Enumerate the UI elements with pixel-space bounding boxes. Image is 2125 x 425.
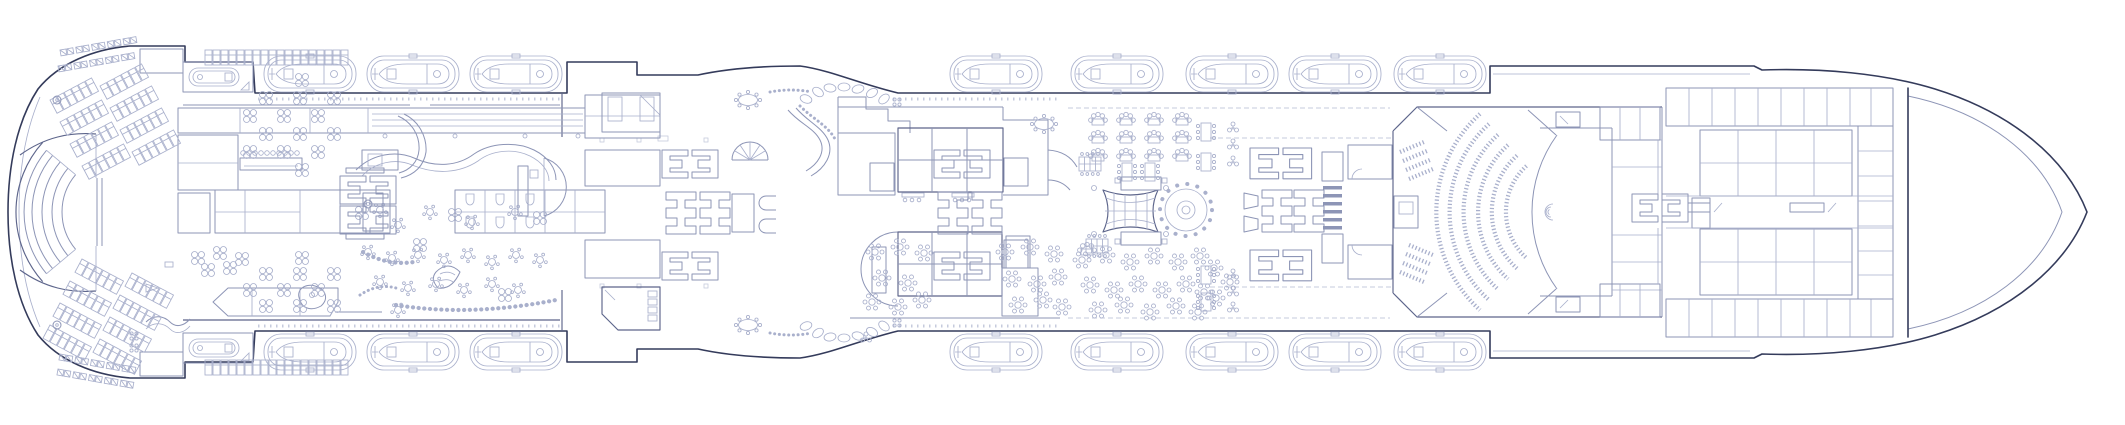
table-4top: [294, 268, 307, 281]
planter-rock: [877, 319, 891, 333]
long-table: [1196, 293, 1215, 311]
star-table: [1115, 297, 1133, 313]
bow-bulwark: [1908, 96, 2062, 329]
table-4top: [278, 110, 291, 123]
stage: [1532, 112, 1612, 312]
table-4top: [244, 284, 257, 297]
star-table: [899, 275, 917, 291]
plant: [1228, 302, 1239, 312]
elevator-pair: [1250, 250, 1312, 281]
wc-stall: [496, 217, 504, 228]
long-table: [1117, 163, 1136, 181]
theatre: [1393, 107, 1710, 317]
table-4top: [236, 253, 249, 266]
oval-table: [734, 315, 761, 334]
lounger-row: [253, 50, 300, 65]
star-table: [1169, 254, 1187, 270]
photo-gallery: [602, 287, 660, 330]
lounger-row: [53, 303, 102, 338]
plant: [1228, 122, 1239, 132]
banquet-cluster: [1089, 112, 1108, 125]
lounger-row: [253, 360, 300, 375]
banquet-cluster: [1173, 112, 1192, 125]
deck-plan-canvas: Cruise ship deck plan: [0, 0, 2125, 425]
round-table: [401, 281, 416, 296]
star-table: [1009, 297, 1027, 313]
wc-stall: [466, 194, 474, 205]
lounger-row: [132, 130, 181, 165]
star-table: [1129, 276, 1147, 292]
planter-rock: [823, 83, 836, 93]
stern-bottom-bar: [146, 262, 396, 333]
lifeboat: [470, 332, 562, 372]
lifeboat: [367, 54, 459, 94]
star-table: [1177, 276, 1195, 292]
table-4top: [296, 252, 309, 265]
tender: [183, 333, 253, 363]
elevator-h: [938, 192, 968, 234]
star-table: [996, 244, 1014, 260]
star-table: [1105, 282, 1123, 298]
banquet-cluster: [1173, 148, 1192, 161]
planter-rock: [865, 87, 879, 100]
elevator-pair: [662, 252, 718, 280]
elevator-pair: [1250, 148, 1312, 179]
elevator-h: [972, 192, 1002, 234]
lounger-row: [70, 122, 119, 157]
planter-rock: [851, 331, 865, 342]
elevator-h: [666, 192, 696, 234]
table-4top: [214, 247, 227, 260]
banquet-cluster: [1145, 148, 1164, 161]
banquet-cluster: [1173, 130, 1192, 143]
table-4top: [356, 207, 369, 220]
table-4top: [224, 262, 237, 275]
windlass: [1688, 203, 1710, 212]
lifeboat: [950, 54, 1042, 94]
star-table: [1034, 292, 1052, 308]
davit-circle: [53, 321, 61, 329]
lifeboat: [264, 332, 356, 372]
round-table: [509, 248, 524, 263]
table-4top: [312, 146, 325, 159]
cabin-row-bottom: [1666, 299, 1893, 337]
hull-outline: [8, 46, 2087, 378]
table-4top: [499, 289, 512, 302]
round-table: [373, 275, 388, 290]
round-table: [429, 277, 444, 292]
restrooms: [455, 190, 605, 233]
lounger-row: [301, 50, 348, 65]
round-table: [423, 205, 438, 220]
lounger-pairs: [58, 53, 135, 72]
lounger-pairs: [59, 354, 136, 373]
dining-upper: [838, 97, 1077, 202]
table-4top: [312, 110, 325, 123]
star-table: [1081, 277, 1099, 293]
piano-bar-counter: [518, 166, 528, 216]
banquet-cluster: [1117, 130, 1136, 143]
table-4top: [294, 128, 307, 141]
lifeboat: [1186, 332, 1278, 372]
lounger-row: [113, 295, 162, 330]
elevator-pair: [340, 206, 396, 234]
oval-table: [734, 90, 761, 109]
long-table: [1140, 163, 1159, 181]
table-4top: [260, 300, 273, 313]
elevator-h: [1262, 190, 1292, 232]
deck-plan-svg: Cruise ship deck plan: [0, 0, 2125, 425]
star-table: [913, 292, 931, 308]
long-table: [1196, 123, 1215, 141]
elevator-pair: [1632, 194, 1688, 222]
round-table: [457, 283, 472, 298]
round-table: [485, 277, 500, 292]
round-table: [391, 218, 406, 233]
grand-stair: [732, 90, 836, 335]
star-table: [1049, 269, 1067, 285]
planter-rock: [811, 326, 825, 339]
lounger-row: [120, 108, 169, 143]
long-table: [1196, 266, 1215, 284]
wc-stall: [526, 194, 534, 205]
banquet-cluster: [1145, 112, 1164, 125]
star-table: [1167, 298, 1185, 314]
planter-rock: [838, 83, 850, 91]
planter-rock: [799, 93, 813, 105]
elevator-pair: [934, 150, 990, 178]
wc-stall: [496, 194, 504, 205]
theatre-lobby-blocks: [1244, 145, 1392, 279]
star-table: [1003, 271, 1021, 287]
lifeboat: [1071, 54, 1163, 94]
table-4top: [328, 268, 341, 281]
theatre-seating: [1400, 114, 1527, 310]
star-table: [915, 245, 933, 261]
long-table: [1196, 153, 1215, 171]
lifeboat: [1394, 54, 1486, 94]
control-booth: [1394, 196, 1418, 228]
banquet-cluster: [1145, 130, 1164, 143]
table-4top: [328, 128, 341, 141]
windlass: [1790, 203, 1824, 212]
lifeboat: [470, 54, 562, 94]
table-4top: [534, 212, 547, 225]
table-4top: [328, 300, 341, 313]
round-table: [533, 253, 548, 268]
lifeboat: [367, 332, 459, 372]
star-table: [1221, 274, 1239, 290]
mid-stair-aft: [732, 194, 754, 232]
planter-rock: [811, 85, 825, 98]
banquet-cluster: [1117, 112, 1136, 125]
lounger-row: [60, 100, 109, 135]
tender: [183, 62, 253, 92]
lounger-row: [93, 339, 142, 374]
wc-stall: [526, 217, 534, 228]
planter-rock: [877, 92, 891, 106]
star-table: [873, 270, 891, 286]
shops: [585, 93, 660, 330]
star-table: [1145, 248, 1163, 264]
escalators: [1323, 186, 1342, 230]
lifeboat: [1186, 54, 1278, 94]
galleria-lounge: [178, 90, 836, 335]
star-table: [863, 294, 881, 310]
banquet-cluster: [1089, 130, 1108, 143]
lifeboat: [264, 54, 356, 94]
star-table: [1153, 282, 1171, 298]
lounger-row: [103, 317, 152, 352]
star-table: [891, 239, 909, 255]
gallery-block: [178, 108, 585, 133]
round-table: [437, 253, 452, 268]
round-table: [485, 255, 500, 270]
star-table: [1089, 302, 1107, 318]
lounger-row: [75, 259, 124, 294]
lounger-row: [100, 64, 149, 99]
planter-rock: [851, 84, 865, 95]
table-4top: [244, 110, 257, 123]
stern-amphitheatre: [16, 134, 102, 292]
lifeboat: [1394, 332, 1486, 372]
table-4top: [202, 264, 215, 277]
lifeboat: [950, 332, 1042, 372]
star-table: [1053, 299, 1071, 315]
table-4top: [260, 128, 273, 141]
cabin-col-right: [1858, 126, 1893, 299]
table-4top: [278, 284, 291, 297]
plant: [1228, 156, 1239, 166]
stern-terrace-rail: [19, 97, 40, 327]
round-table: [511, 283, 526, 298]
elevator-pair: [934, 252, 990, 280]
stern-stair-bottom: [140, 352, 183, 376]
stern-stair-top: [140, 49, 183, 73]
star-table: [1121, 254, 1139, 270]
table-4top: [260, 268, 273, 281]
lifeboat: [1289, 332, 1381, 372]
planter-rock: [823, 332, 836, 342]
lifeboat: [1289, 54, 1381, 94]
star-table: [1191, 248, 1209, 264]
lifeboat: [1071, 332, 1163, 372]
lounger-row: [82, 144, 131, 179]
star-table: [1028, 276, 1046, 292]
round-table: [461, 248, 476, 263]
banquet-cluster: [1117, 148, 1136, 161]
lounger-row: [110, 86, 159, 121]
oval-table: [1030, 114, 1057, 133]
furniture-layer: [43, 37, 1688, 389]
elevator-h: [700, 192, 730, 234]
planter-rock: [799, 320, 813, 332]
cabin-row-top: [1666, 88, 1893, 126]
elevator-pair: [662, 150, 718, 178]
planter-leaf: [433, 266, 460, 288]
table-4top: [296, 74, 309, 87]
star-table: [1045, 246, 1063, 262]
elevator-h: [1294, 190, 1324, 232]
dance-floor: [1160, 184, 1212, 236]
lounger-row: [63, 281, 112, 316]
atrium-sculpture: [1092, 177, 1169, 245]
plant: [1228, 139, 1239, 149]
planter-rock: [838, 334, 850, 342]
star-table: [889, 299, 907, 315]
table-4top: [192, 252, 205, 265]
midship: [732, 97, 1077, 318]
conference-table: [1079, 153, 1101, 176]
